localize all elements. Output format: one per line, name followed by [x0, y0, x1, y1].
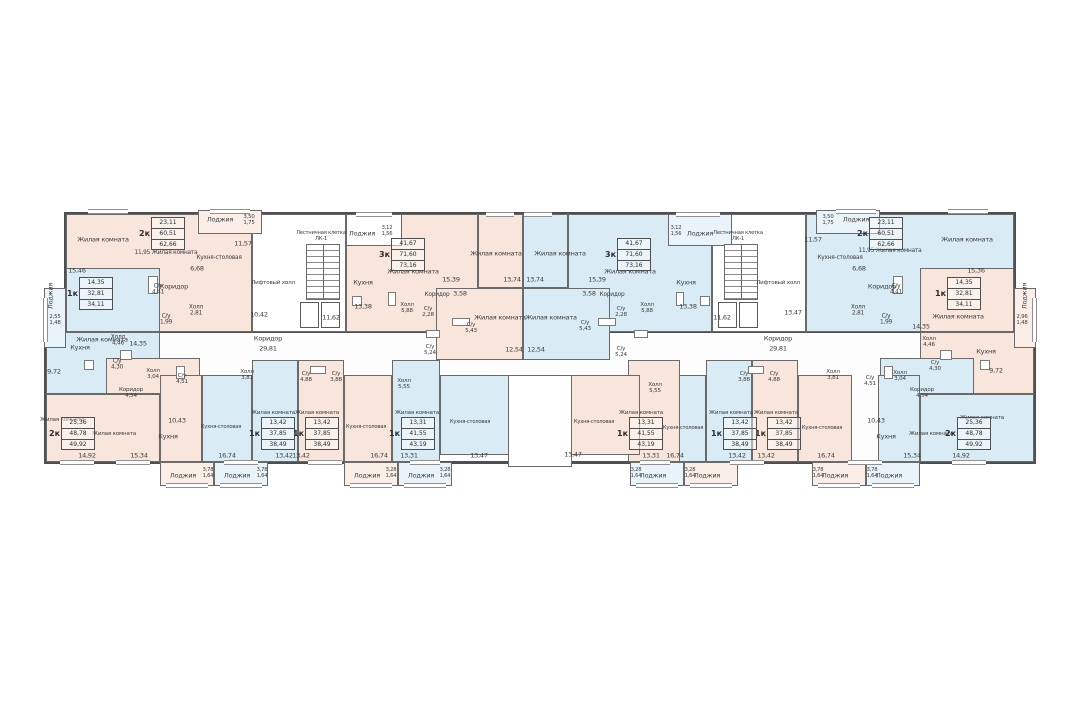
- plumbing-fixture-icon: [676, 292, 684, 306]
- window: [948, 209, 988, 214]
- stairs-icon: [306, 244, 340, 300]
- plumbing-fixture-icon: [980, 360, 990, 370]
- apartment-info-table[interactable]: 1к13,4237,8538,49: [293, 417, 339, 450]
- window: [224, 460, 258, 465]
- area-value: 32,81: [948, 289, 980, 300]
- window: [60, 460, 94, 465]
- plumbing-fixture-icon: [120, 350, 132, 360]
- area-value: 71,60: [618, 250, 650, 261]
- plumbing-fixture-icon: [940, 350, 952, 360]
- apartment-info-table[interactable]: 1к13,4237,8538,49: [755, 417, 801, 450]
- floor-plan-canvas: Жилая комната15,4611,95 Жилая комнатаКор…: [0, 0, 1080, 720]
- area-value: 62,66: [152, 240, 184, 250]
- elevator-shaft: [321, 302, 340, 328]
- apartment-info-table[interactable]: 1к13,3141,5543,19: [617, 417, 663, 450]
- apartment-type-label: 3к: [379, 250, 390, 259]
- apartment-2k-bottom-left[interactable]: [160, 375, 202, 462]
- area-value: 34,11: [80, 300, 112, 310]
- plumbing-fixture-icon: [748, 366, 764, 374]
- apartment-info-table[interactable]: 2к25,3648,7849,92: [49, 417, 95, 450]
- apartment-info-table[interactable]: 1к13,4237,8538,49: [711, 417, 757, 450]
- apartment-info-table[interactable]: 1к14,3532,8134,11: [67, 277, 113, 310]
- window: [410, 460, 440, 465]
- area-value: 23,11: [152, 218, 184, 229]
- apartment-areas: 13,4237,8538,49: [767, 417, 801, 450]
- window: [1032, 298, 1037, 342]
- area-value: 49,92: [62, 440, 94, 450]
- area-value: 71,60: [392, 250, 424, 261]
- plumbing-fixture-icon: [84, 360, 94, 370]
- plumbing-fixture-icon: [310, 366, 326, 374]
- apartment-areas: 41,6771,6073,16: [617, 238, 651, 271]
- room-living-left: [436, 288, 523, 360]
- area-value: 25,36: [958, 418, 990, 429]
- window: [676, 212, 720, 217]
- area-value: 13,42: [306, 418, 338, 429]
- area-value: 41,67: [618, 239, 650, 250]
- area-value: 73,16: [618, 261, 650, 271]
- area-value: 38,49: [306, 440, 338, 450]
- apartment-info-table[interactable]: 2к23,1160,5162,66: [139, 217, 185, 250]
- window: [220, 483, 262, 488]
- window: [166, 483, 208, 488]
- plumbing-fixture-icon: [176, 366, 185, 379]
- apartment-type-label: 1к: [711, 429, 722, 438]
- area-value: 43,19: [402, 440, 434, 450]
- area-value: 41,55: [402, 429, 434, 440]
- window: [404, 483, 446, 488]
- apartment-info-table[interactable]: 1к13,3141,5543,19: [389, 417, 435, 450]
- apartment-1k-b-left[interactable]: [202, 375, 252, 462]
- apartment-type-label: 1к: [67, 289, 78, 298]
- plumbing-fixture-icon: [598, 318, 616, 326]
- window: [350, 483, 392, 488]
- window: [690, 483, 732, 488]
- plumbing-fixture-icon: [352, 296, 362, 306]
- apartment-type-label: 2к: [139, 229, 150, 238]
- area-value: 60,51: [152, 229, 184, 240]
- area-value: 13,42: [768, 418, 800, 429]
- window: [640, 460, 670, 465]
- apartment-areas: 13,3141,5543,19: [629, 417, 663, 450]
- apartment-areas: 13,4237,8538,49: [723, 417, 757, 450]
- window: [730, 460, 764, 465]
- area-value: 38,49: [768, 440, 800, 450]
- window: [848, 460, 882, 465]
- plumbing-fixture-icon: [893, 276, 903, 294]
- apartment-info-table[interactable]: 1к14,3532,8134,11: [935, 277, 981, 310]
- window: [116, 460, 150, 465]
- area-value: 37,85: [768, 429, 800, 440]
- window: [43, 298, 48, 342]
- apartment-2k-bottom-right[interactable]: [878, 375, 920, 462]
- area-value: 14,35: [80, 278, 112, 289]
- area-value: 62,66: [870, 240, 902, 250]
- window: [308, 460, 342, 465]
- window: [636, 483, 678, 488]
- apartment-areas: 14,3532,8134,11: [79, 277, 113, 310]
- window: [524, 212, 552, 217]
- apartment-1k-b-right[interactable]: [798, 375, 852, 462]
- apartment-type-label: 1к: [617, 429, 628, 438]
- plumbing-fixture-icon: [148, 276, 158, 294]
- apartment-type-label: 2к: [857, 229, 868, 238]
- building-notch: [508, 375, 572, 467]
- apartment-type-label: 1к: [389, 429, 400, 438]
- apartment-areas: 14,3532,8134,11: [947, 277, 981, 310]
- window: [836, 209, 876, 214]
- apartment-areas: 25,3648,7849,92: [957, 417, 991, 450]
- apartment-type-label: 2к: [49, 429, 60, 438]
- apartment-info-table[interactable]: 2к25,3648,7849,92: [945, 417, 991, 450]
- window: [88, 209, 128, 214]
- apartment-areas: 23,1160,5162,66: [151, 217, 185, 250]
- area-value: 43,19: [630, 440, 662, 450]
- apartment-info-table[interactable]: 2к23,1160,5162,66: [857, 217, 903, 250]
- plumbing-fixture-icon: [388, 292, 396, 306]
- apartment-areas: 13,4237,8538,49: [261, 417, 295, 450]
- apartment-areas: 13,4237,8538,49: [305, 417, 339, 450]
- area-value: 41,55: [630, 429, 662, 440]
- apartment-areas: 23,1160,5162,66: [869, 217, 903, 250]
- area-value: 49,92: [958, 440, 990, 450]
- area-value: 60,51: [870, 229, 902, 240]
- area-value: 32,81: [80, 289, 112, 300]
- apartment-type-label: 1к: [249, 429, 260, 438]
- area-value: 73,16: [392, 261, 424, 271]
- elevator-shaft: [300, 302, 319, 328]
- area-value: 23,11: [870, 218, 902, 229]
- apartment-type-label: 1к: [935, 289, 946, 298]
- plumbing-fixture-icon: [634, 330, 648, 338]
- apartment-areas: 25,3648,7849,92: [61, 417, 95, 450]
- apartment-type-label: 3к: [605, 250, 616, 259]
- apartment-info-table[interactable]: 3к41,6771,6073,16: [605, 238, 651, 271]
- area-value: 13,42: [262, 418, 294, 429]
- loggia-block: [668, 214, 732, 246]
- window: [818, 483, 860, 488]
- plumbing-fixture-icon: [700, 296, 710, 306]
- area-value: 34,11: [948, 300, 980, 310]
- area-value: 37,85: [262, 429, 294, 440]
- window: [872, 483, 914, 488]
- elevator-shaft: [718, 302, 737, 328]
- window: [486, 212, 514, 217]
- area-value: 38,49: [262, 440, 294, 450]
- area-value: 13,31: [402, 418, 434, 429]
- apartment-areas: 41,6771,6073,16: [391, 238, 425, 271]
- area-value: 48,78: [62, 429, 94, 440]
- elevator-shaft: [739, 302, 758, 328]
- apartment-type-label: 1к: [293, 429, 304, 438]
- area-value: 13,31: [630, 418, 662, 429]
- area-value: 37,85: [724, 429, 756, 440]
- area-value: 38,49: [724, 440, 756, 450]
- room-living-right: [523, 288, 610, 360]
- window: [210, 209, 250, 214]
- area-value: 48,78: [958, 429, 990, 440]
- area-value: 41,67: [392, 239, 424, 250]
- area-value: 25,36: [62, 418, 94, 429]
- area-value: 13,42: [724, 418, 756, 429]
- plumbing-fixture-icon: [884, 366, 893, 379]
- window: [952, 460, 986, 465]
- window: [356, 212, 392, 217]
- plumbing-fixture-icon: [426, 330, 440, 338]
- apartment-1k-c-left[interactable]: [344, 375, 392, 462]
- apartment-type-label: 2к: [945, 429, 956, 438]
- plumbing-fixture-icon: [452, 318, 470, 326]
- room-living-right: [523, 214, 568, 288]
- area-value: 14,35: [948, 278, 980, 289]
- room-living-left: [478, 214, 523, 288]
- area-value: 37,85: [306, 429, 338, 440]
- apartment-info-table[interactable]: 1к13,4237,8538,49: [249, 417, 295, 450]
- stairs-icon: [724, 244, 758, 300]
- apartment-1k-d-left[interactable]: [440, 375, 510, 455]
- apartment-areas: 13,3141,5543,19: [401, 417, 435, 450]
- apartment-info-table[interactable]: 3к41,6771,6073,16: [379, 238, 425, 271]
